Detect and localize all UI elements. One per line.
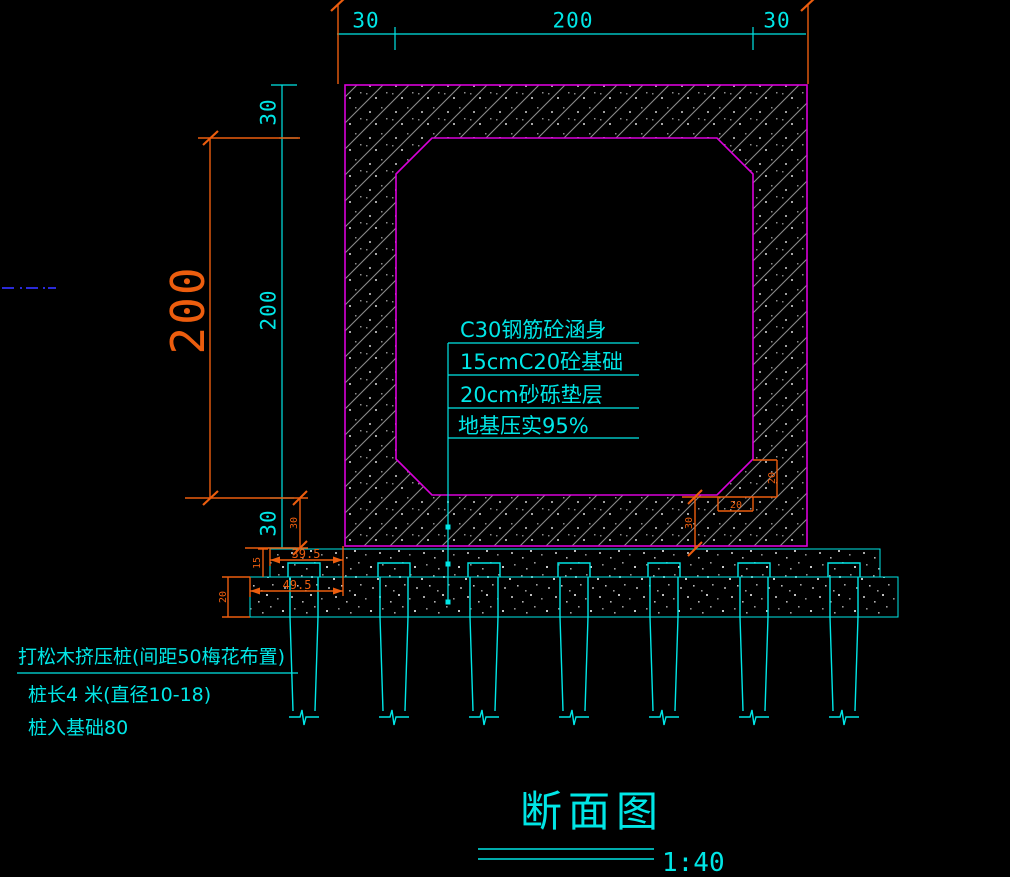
drawing-title: 断面图 bbox=[520, 791, 664, 833]
dim-left-top: 30 bbox=[259, 98, 280, 125]
dim-slab-left: 30 bbox=[290, 517, 300, 529]
pile-note-embed: 桩入基础80 bbox=[28, 719, 128, 738]
dim-layer2-thickness: 20 bbox=[219, 591, 229, 603]
dim-top-left: 30 bbox=[352, 11, 379, 32]
culvert-opening bbox=[396, 138, 753, 495]
annotation-foundation: 15cmC20砼基础 bbox=[460, 352, 623, 373]
dim-chamfer-height: 20 bbox=[768, 472, 778, 484]
cad-canvas[interactable]: 30 200 30 30 200 30 200 30 30 39.5 49.5 … bbox=[0, 0, 1010, 877]
dim-top-mid: 200 bbox=[553, 11, 594, 32]
drawing-scale: 1:40 bbox=[662, 850, 725, 876]
annotation-culvert-body: C30钢筋砼涵身 bbox=[460, 320, 606, 341]
annotation-compaction: 地基压实95% bbox=[458, 416, 589, 437]
culvert-body bbox=[345, 85, 807, 546]
dim-left-bottom: 30 bbox=[259, 509, 280, 536]
dim-layer2-offset: 49.5 bbox=[283, 579, 312, 591]
drawing-linework bbox=[0, 0, 1010, 877]
dim-layer1-offset: 39.5 bbox=[292, 548, 321, 560]
dim-top-right: 30 bbox=[763, 11, 790, 32]
annotation-bedding: 20cm砂砾垫层 bbox=[460, 385, 603, 406]
pile-note-length: 桩长4 米(直径10-18) bbox=[28, 686, 211, 705]
foundation-layer2 bbox=[250, 577, 898, 617]
dim-layer1-thickness: 15 bbox=[253, 557, 263, 569]
dim-slab-right: 30 bbox=[685, 517, 695, 529]
pile-note-spacing: 打松木挤压桩(间距50梅花布置) bbox=[18, 648, 285, 667]
dim-left-mid: 200 bbox=[259, 290, 280, 331]
dim-left-overall: 200 bbox=[165, 265, 211, 354]
dim-chamfer-width: 20 bbox=[730, 501, 742, 511]
